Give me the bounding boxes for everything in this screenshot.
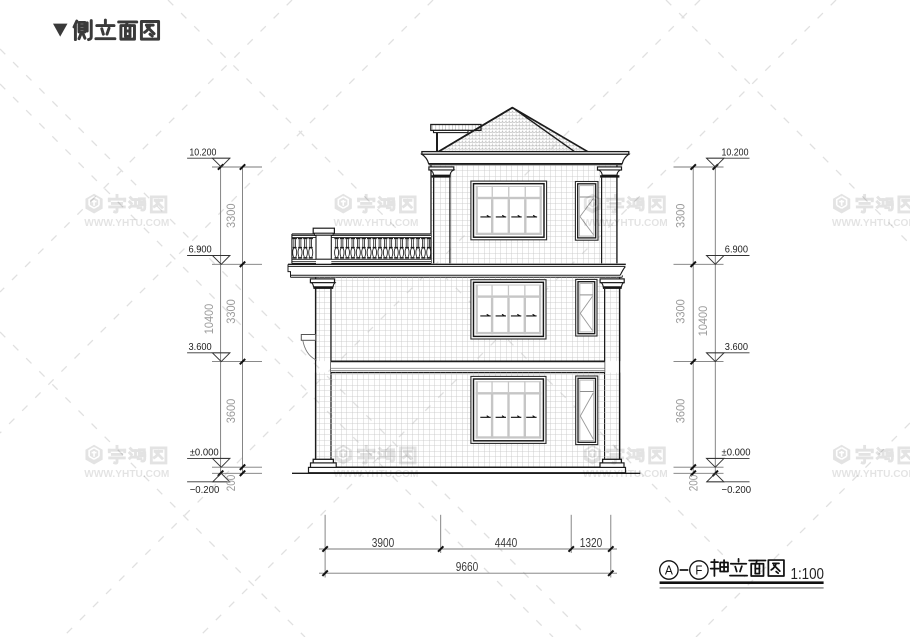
svg-text:200: 200: [226, 475, 238, 492]
svg-text:10400: 10400: [204, 304, 216, 335]
svg-text:3900: 3900: [372, 535, 395, 550]
svg-text:6.900: 6.900: [189, 244, 212, 256]
svg-text:3300: 3300: [675, 204, 687, 229]
svg-text:±0.000: ±0.000: [190, 447, 219, 459]
svg-text:1320: 1320: [580, 535, 603, 550]
svg-text:6.900: 6.900: [725, 244, 748, 256]
svg-text:4440: 4440: [495, 535, 518, 550]
svg-text:WWW.YHTU.COM: WWW.YHTU.COM: [832, 469, 910, 480]
svg-text:3300: 3300: [226, 299, 238, 324]
svg-text:3.600: 3.600: [189, 341, 212, 353]
svg-text:WWW.YHTU.COM: WWW.YHTU.COM: [334, 469, 419, 480]
svg-text:−0.200: −0.200: [722, 484, 752, 496]
svg-text:WWW.YHTU.COM: WWW.YHTU.COM: [334, 218, 419, 229]
svg-text:10.200: 10.200: [189, 146, 216, 158]
svg-text:±0.000: ±0.000: [722, 447, 751, 459]
svg-text:WWW.YHTU.COM: WWW.YHTU.COM: [84, 469, 169, 480]
svg-text:10.200: 10.200: [722, 146, 749, 158]
svg-text:3.600: 3.600: [725, 341, 748, 353]
svg-text:200: 200: [689, 475, 701, 492]
svg-text:−0.200: −0.200: [190, 484, 220, 496]
svg-text:3600: 3600: [226, 399, 238, 424]
svg-text:9660: 9660: [456, 559, 479, 574]
svg-text:10400: 10400: [698, 306, 710, 337]
svg-text:A: A: [665, 564, 674, 578]
svg-text:3300: 3300: [226, 204, 238, 229]
svg-text:1:100: 1:100: [791, 566, 825, 583]
svg-text:WWW.YHTU.COM: WWW.YHTU.COM: [832, 218, 910, 229]
svg-text:WWW.YHTU.COM: WWW.YHTU.COM: [583, 218, 668, 229]
svg-text:F: F: [695, 564, 702, 578]
svg-text:3300: 3300: [675, 299, 687, 324]
svg-text:3600: 3600: [675, 399, 687, 424]
svg-text:WWW.YHTU.COM: WWW.YHTU.COM: [583, 469, 668, 480]
svg-text:WWW.YHTU.COM: WWW.YHTU.COM: [84, 218, 169, 229]
